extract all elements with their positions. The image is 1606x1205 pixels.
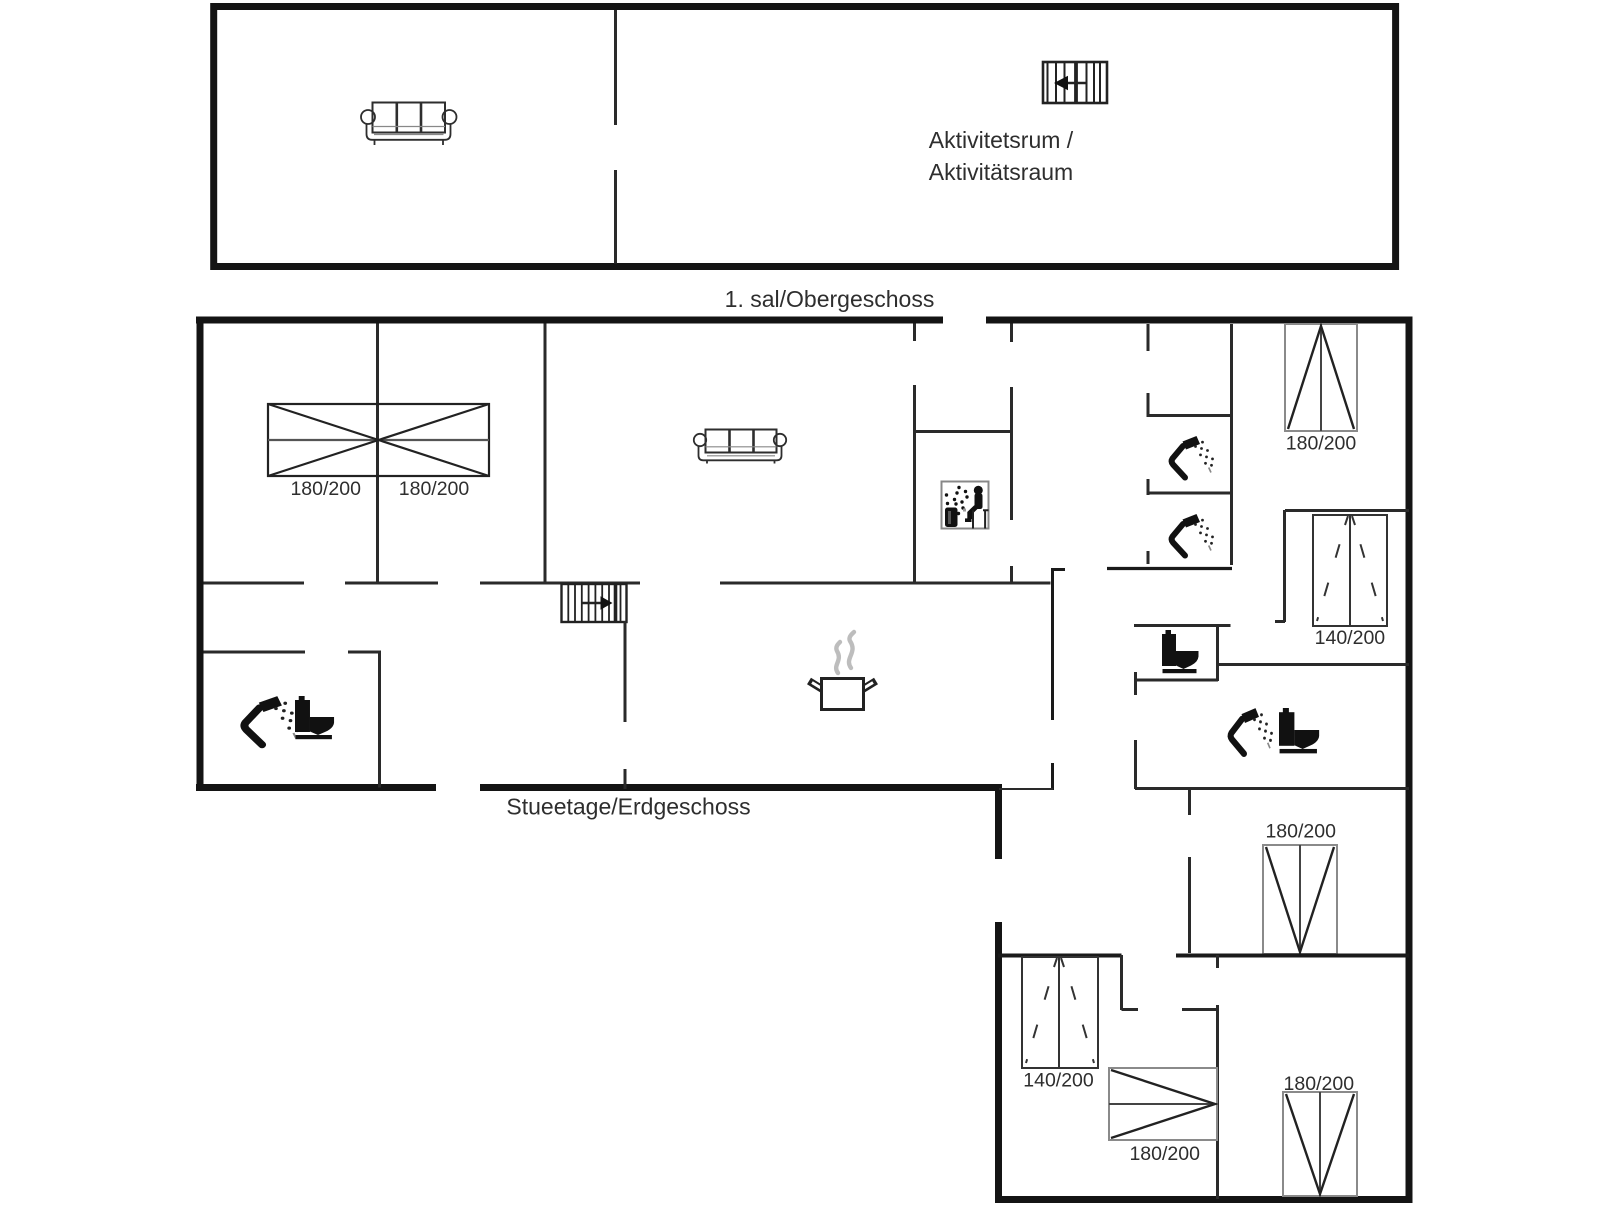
svg-text:180/200: 180/200 — [1284, 1073, 1355, 1095]
svg-text:180/200: 180/200 — [399, 478, 470, 500]
svg-text:140/200: 140/200 — [1023, 1069, 1094, 1091]
svg-text:180/200: 180/200 — [1286, 433, 1357, 455]
svg-text:Stueetage/Erdgeschoss: Stueetage/Erdgeschoss — [506, 794, 750, 820]
svg-text:180/200: 180/200 — [1129, 1143, 1200, 1165]
svg-text:180/200: 180/200 — [1265, 821, 1336, 843]
svg-text:Aktivitetsrum /: Aktivitetsrum / — [929, 127, 1074, 153]
svg-text:140/200: 140/200 — [1315, 627, 1386, 649]
svg-text:180/200: 180/200 — [290, 478, 361, 500]
svg-text:1. sal/Obergeschoss: 1. sal/Obergeschoss — [725, 286, 935, 312]
svg-text:Aktivitätsraum: Aktivitätsraum — [929, 159, 1073, 185]
